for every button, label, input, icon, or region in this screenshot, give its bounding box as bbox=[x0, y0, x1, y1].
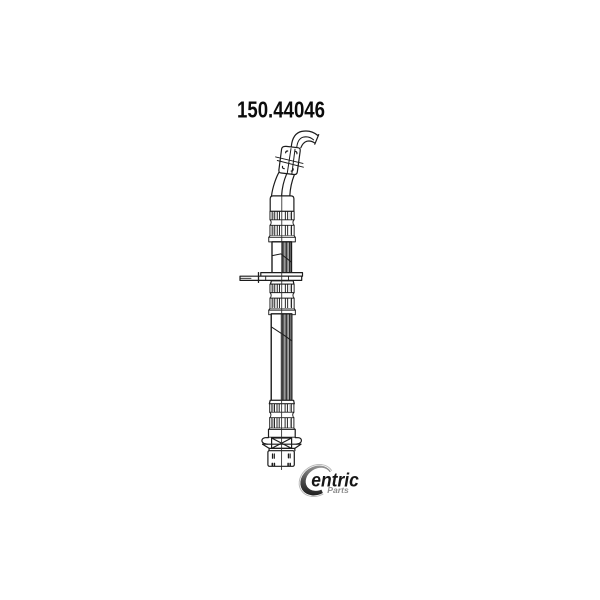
svg-text:Parts: Parts bbox=[327, 486, 349, 495]
svg-text:150.44046: 150.44046 bbox=[237, 96, 325, 122]
